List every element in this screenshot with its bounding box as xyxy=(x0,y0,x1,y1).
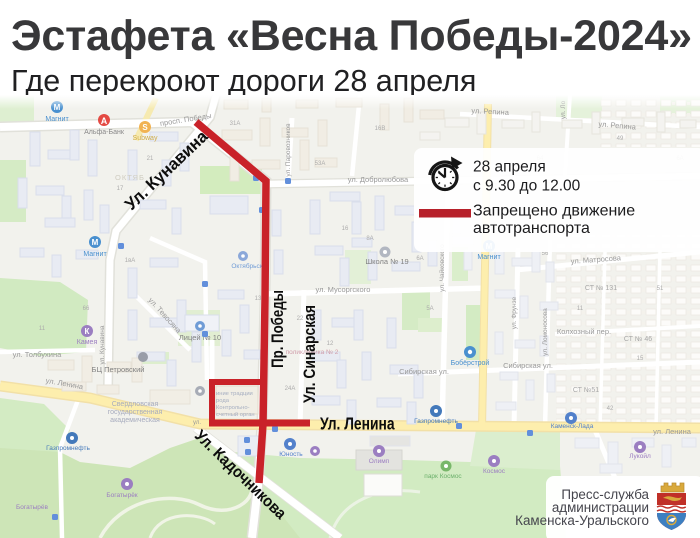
svg-text:с 9.30 до 12.00: с 9.30 до 12.00 xyxy=(473,178,581,195)
svg-text:Каменска-Уральского: Каменска-Уральского xyxy=(515,513,649,528)
svg-text:Ул. Ленина: Ул. Ленина xyxy=(320,415,395,434)
svg-text:Пр. Победы: Пр. Победы xyxy=(269,290,288,368)
svg-text:автотранспорта: автотранспорта xyxy=(473,220,590,237)
svg-text:Ул. Синарская: Ул. Синарская xyxy=(301,305,320,403)
svg-text:Запрещено движение: Запрещено движение xyxy=(473,203,635,220)
svg-text:28 апреля: 28 апреля xyxy=(473,159,546,176)
